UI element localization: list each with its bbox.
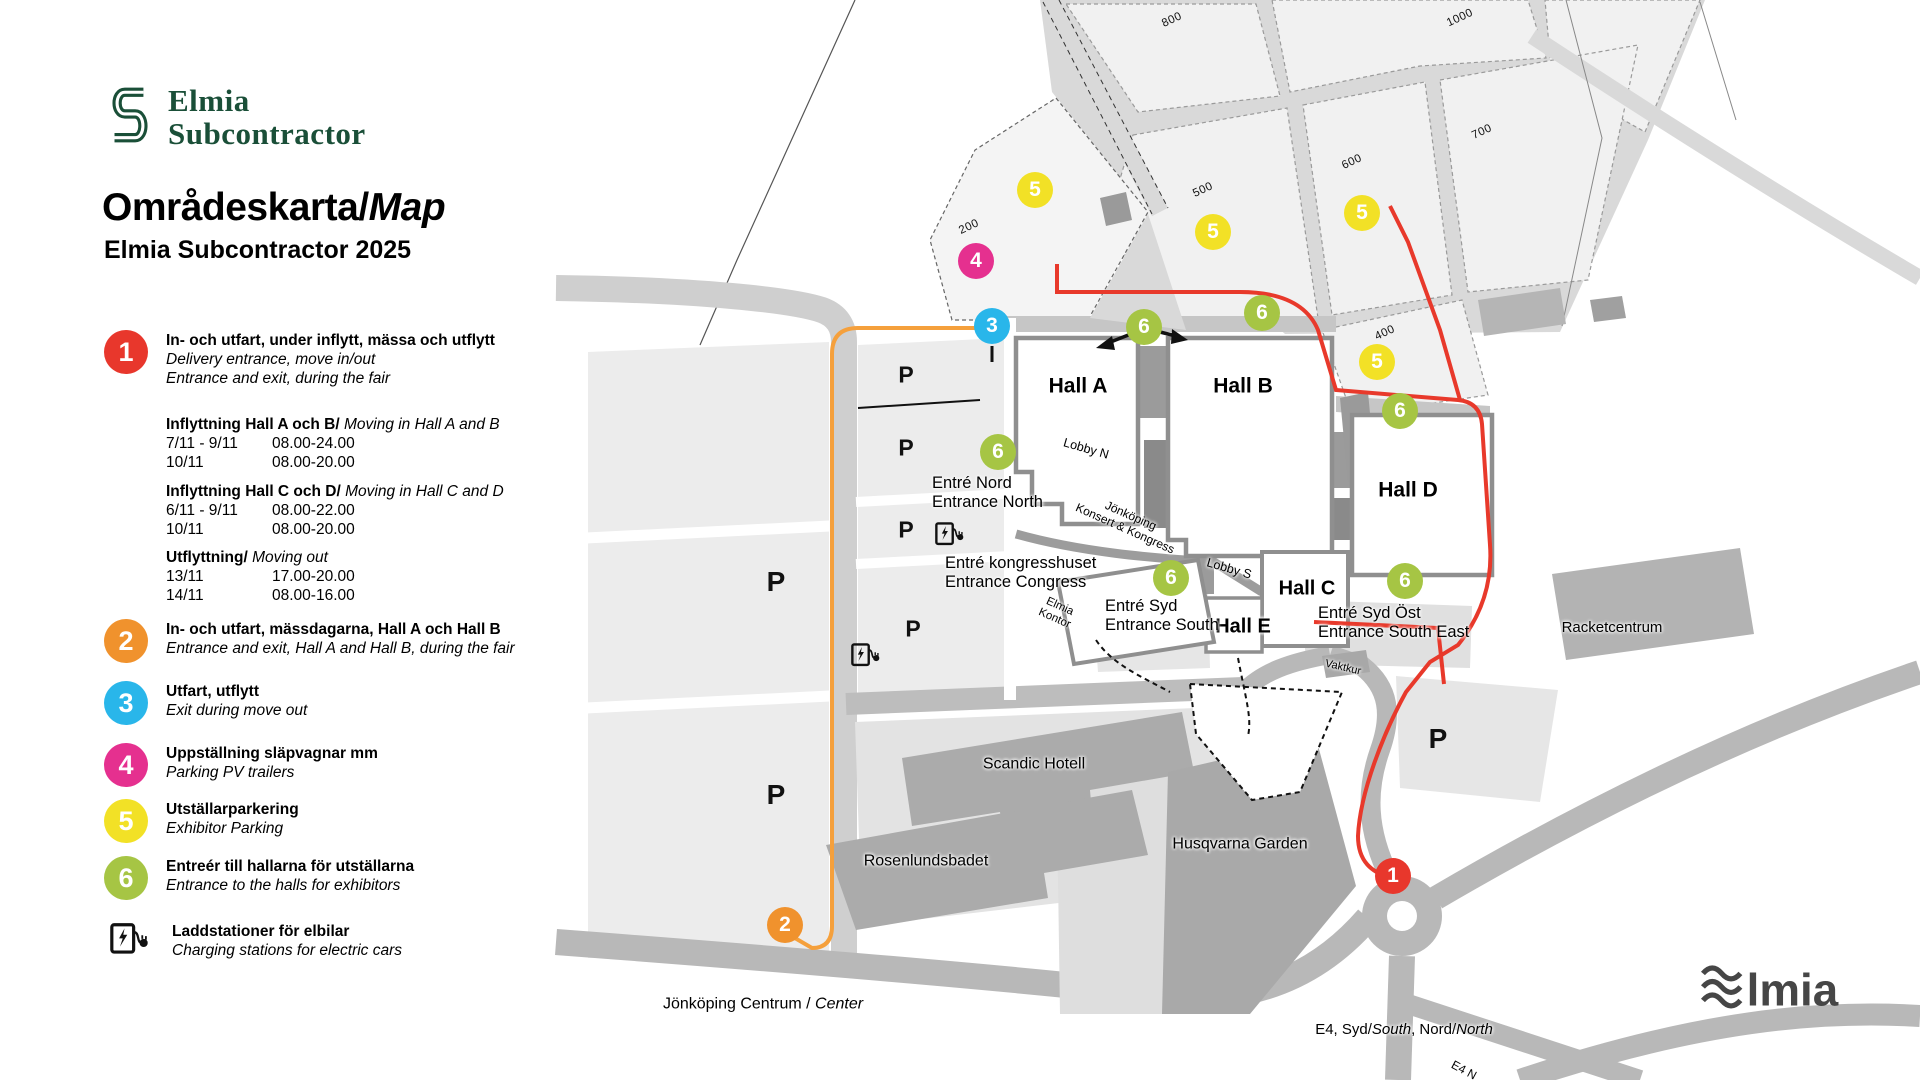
map-label: Hall C (1279, 578, 1336, 601)
map-label: Entré NordEntrance North (932, 474, 1043, 512)
map-label: E4, Syd/South, Nord/North (1315, 1021, 1493, 1039)
parking-lot-number: 1000 (1445, 7, 1475, 30)
legend-badge-2: 2 (104, 619, 148, 663)
map-label: Hall A (1049, 374, 1108, 399)
map-label: JönköpingKonsert & Kongress (1074, 488, 1183, 557)
legend: 1In- och utfart, under inflytt, mässa oc… (104, 330, 574, 960)
elmia-subcontractor-logo: Elmia Subcontractor (104, 84, 366, 150)
map-label: Husqvarna Garden (1172, 835, 1307, 854)
logo-wordmark: Elmia Subcontractor (168, 84, 366, 150)
map-badge-1: 1 (1375, 858, 1411, 894)
page-subtitle: Elmia Subcontractor 2025 (104, 236, 411, 265)
ev-charging-station-icon (935, 521, 965, 546)
map-label: Scandic Hotell (983, 755, 1085, 774)
legend-item-4: 4Uppställning släpvagnar mmParking PV tr… (104, 743, 574, 787)
map-label: Hall B (1213, 374, 1273, 399)
map-badge-5: 5 (1359, 344, 1395, 380)
parking-p-marker: P (905, 618, 920, 641)
map-label: ElmiaKontor (1036, 594, 1078, 632)
parking-lot-number: 500 (1191, 180, 1215, 200)
map-badge-5: 5 (1195, 214, 1231, 250)
map-label: Entré Syd ÖstEntrance South East (1318, 604, 1469, 642)
map-badge-6: 6 (1126, 309, 1162, 345)
map-badge-6: 6 (1382, 393, 1418, 429)
footer-logo-text: lmia (1747, 965, 1839, 1014)
map-label: Vaktkur (1324, 658, 1362, 679)
parking-lot-number: 200 (957, 217, 981, 237)
parking-lot-number: 600 (1340, 152, 1364, 172)
map-label: Hall D (1378, 478, 1438, 503)
parking-p-marker: P (898, 437, 913, 460)
map-badge-5: 5 (1344, 195, 1380, 231)
map-badge-5: 5 (1017, 172, 1053, 208)
map-label: Lobby S (1205, 555, 1253, 582)
map-badge-6: 6 (1244, 295, 1280, 331)
page-title: Områdeskarta/Map (102, 186, 445, 230)
map-badge-6: 6 (1387, 563, 1423, 599)
legend-badge-4: 4 (104, 743, 148, 787)
parking-p-marker: P (898, 364, 913, 387)
legend-badge-1: 1 (104, 330, 148, 374)
elmia-footer-logo: lmia (1698, 962, 1866, 1014)
map-label: Rosenlundsbadet (864, 852, 989, 871)
legend-item-1: 1In- och utfart, under inflytt, mässa oc… (104, 330, 574, 388)
parking-p-marker: P (767, 568, 786, 596)
legend-item-6: 6Entreér till hallarna för utställarnaEn… (104, 856, 574, 900)
map-label: Hall E (1215, 616, 1271, 639)
parking-p-marker: P (1429, 725, 1448, 753)
map-label: Entré kongresshusetEntrance Congress (945, 554, 1096, 592)
legend-schedule: Utflyttning/ Moving out13/1117.00-20.001… (166, 548, 574, 605)
map-label: Lobby N (1062, 435, 1111, 462)
parking-p-marker: P (898, 519, 913, 542)
map-page: 55554366666612PPPPPPP8001000500600700200… (0, 0, 1920, 1080)
parking-lot-number: 400 (1373, 323, 1397, 343)
legend-badge-5: 5 (104, 799, 148, 843)
elmia-logo-mark-icon (104, 84, 156, 150)
legend-item-5: 5UtställarparkeringExhibitor Parking (104, 799, 574, 843)
map-label: Entré SydEntrance South (1105, 597, 1219, 635)
parking-lot-number: 700 (1470, 122, 1494, 142)
ev-charging-station-icon (851, 642, 881, 667)
legend-badge-6: 6 (104, 856, 148, 900)
legend-badge-3: 3 (104, 681, 148, 725)
map-label: E4 N (1449, 1058, 1479, 1080)
map-badge-3: 3 (974, 308, 1010, 344)
legend-schedule: Inflyttning Hall C och D/ Moving in Hall… (166, 482, 574, 539)
ev-charging-station-icon (104, 921, 154, 960)
legend-item-2: 2In- och utfart, mässdagarna, Hall A och… (104, 619, 574, 663)
legend-item-charging: Laddstationer för elbilarCharging statio… (104, 921, 574, 960)
legend-schedule: Inflyttning Hall A och B/ Moving in Hall… (166, 415, 574, 472)
map-badge-2: 2 (767, 907, 803, 943)
map-badge-4: 4 (958, 243, 994, 279)
map-label: Racketcentrum (1562, 619, 1663, 637)
parking-p-marker: P (767, 781, 786, 809)
map-badge-6: 6 (1153, 560, 1189, 596)
parking-lot-number: 800 (1160, 10, 1184, 30)
legend-item-3: 3Utfart, utflyttExit during move out (104, 681, 574, 725)
map-label: Jönköping Centrum / Center (663, 995, 863, 1014)
map-badge-6: 6 (980, 434, 1016, 470)
